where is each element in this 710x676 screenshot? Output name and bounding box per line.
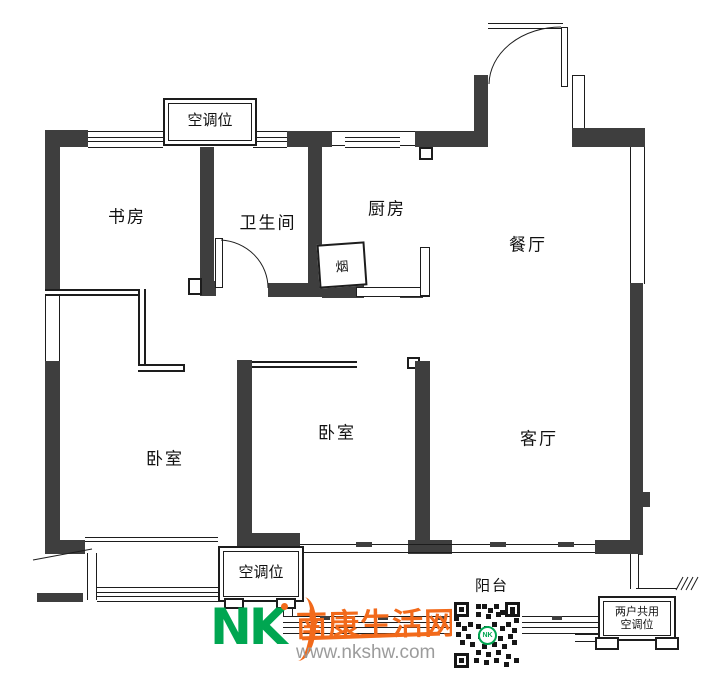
ac-box-shared: 两户共用 空调位 [598, 596, 676, 641]
window-right-wall [630, 147, 645, 284]
wall-segment [45, 361, 60, 541]
wall-segment [630, 128, 645, 148]
flue-label: 烟 [335, 255, 349, 275]
qr-finder [505, 602, 520, 617]
wall-segment [630, 283, 643, 555]
room-label-study: 书房 [108, 203, 146, 228]
entrance-door-leaf [561, 27, 568, 87]
window-top-kitchen [345, 131, 400, 148]
ac-shared-label-2: 空调位 [621, 619, 654, 632]
slider-tick [356, 542, 372, 547]
bay-side [87, 553, 97, 600]
qr-modules [476, 604, 481, 609]
room-label-bathroom: 卫生间 [240, 209, 297, 234]
window-top-study [88, 131, 163, 148]
room-label-bedroom-middle: 卧室 [318, 419, 356, 444]
hatch-marks [676, 577, 698, 590]
floor-plan: 烟 空调位 空调位 两户共用 空调位 [0, 0, 710, 676]
wall-segment [415, 131, 474, 147]
wall-segment [45, 140, 60, 290]
bathroom-door-arc [221, 240, 268, 288]
wall-nib [643, 492, 650, 507]
window-left-wall [45, 296, 60, 361]
qr-center-badge: NK [478, 626, 497, 645]
room-label-dining: 餐厅 [509, 231, 547, 256]
wall-bedroom-middle-left [237, 360, 252, 541]
wall-segment [595, 540, 643, 554]
ac-foot [595, 637, 619, 650]
wall-segment [237, 533, 300, 547]
slider-tick [490, 542, 506, 547]
window-bay-bedroom [97, 587, 218, 602]
wall-line [332, 131, 345, 146]
door-jamb [188, 278, 202, 295]
ac-box-top: 空调位 [163, 98, 257, 146]
entrance-door-arc [489, 27, 561, 84]
qr-finder [454, 653, 469, 668]
mullion [552, 616, 562, 620]
ac-box-bottom-left: 空调位 [218, 546, 304, 602]
wall-nib [419, 147, 433, 160]
slider-tick [558, 542, 574, 547]
ac-foot [655, 637, 679, 650]
bathroom-door-leaf [215, 238, 223, 288]
flue-shaft: 烟 [317, 241, 368, 288]
kitchen-counter [420, 247, 430, 296]
vestibule-wall [488, 23, 563, 29]
qr-code: NK [452, 600, 522, 670]
floor-line [85, 537, 218, 542]
room-label-living: 客厅 [520, 425, 558, 450]
wall-line [630, 554, 639, 589]
watermark-url: www.nkshw.com [296, 642, 435, 664]
balcony-slider-track [300, 544, 595, 553]
partition-niche [138, 364, 185, 372]
partition-niche [138, 289, 146, 372]
wall-bedroom-living [415, 361, 430, 541]
wall-line [400, 131, 415, 146]
entrance-post [474, 75, 488, 147]
partition-study [45, 289, 145, 296]
room-label-balcony: 阳台 [475, 575, 509, 596]
window-top-bathroom [253, 131, 287, 148]
vestibule-side-wall [572, 75, 585, 131]
wall-segment [287, 131, 332, 147]
qr-finder [454, 602, 469, 617]
room-label-bedroom-left: 卧室 [146, 445, 184, 470]
door-swing-arcs [0, 0, 710, 676]
ac-top-label: 空调位 [187, 113, 232, 130]
wall-study-bath [200, 147, 214, 287]
ac-bottom-label: 空调位 [238, 565, 283, 582]
wall-segment [45, 540, 85, 554]
kitchen-counter [356, 287, 430, 297]
nk-logo: NK [210, 598, 285, 656]
wall-line [636, 588, 677, 591]
wall-segment [37, 593, 83, 602]
room-label-kitchen: 厨房 [368, 195, 406, 220]
ac-shared-label-1: 两户共用 [615, 606, 659, 619]
nk-logo-dot [281, 603, 288, 610]
wall-segment [200, 281, 216, 296]
partition-bedroom-middle [252, 361, 357, 368]
